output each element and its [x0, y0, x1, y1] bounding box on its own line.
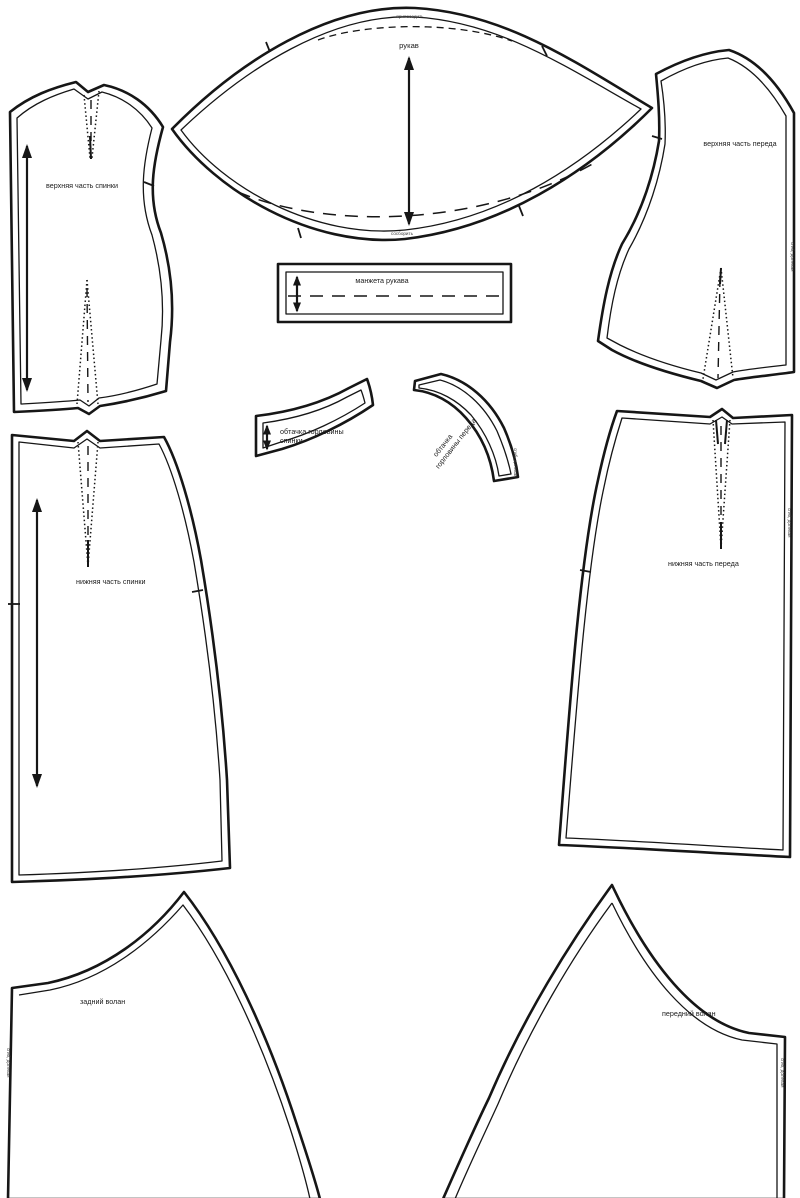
lower-back-label: нижняя часть спинки: [76, 577, 146, 586]
sleeve-label: рукав: [399, 41, 419, 50]
lower-front-label: нижняя часть переда: [668, 559, 739, 568]
upper-front-label: верхняя часть переда: [703, 139, 776, 148]
lower-front-fold-note: сгиб, долевая: [787, 508, 792, 538]
back-neck-facing-label-line2: спинки: [280, 436, 303, 445]
front-flounce-label: передний волан: [662, 1009, 716, 1018]
piece-front-neck-facing: обтачка горловины переда сгиб, долевая: [414, 374, 518, 481]
cuff-cut-line: [278, 264, 511, 322]
upper-back-cut-line: [10, 82, 172, 414]
upper-back-shoulder-dart-point: [90, 136, 91, 159]
front-flounce-fold-note: сгиб, долевая: [780, 1058, 785, 1088]
piece-sleeve: припосадить рукав сосборить: [172, 8, 652, 240]
back-neck-facing-label-line1: обтачка горловины: [280, 427, 344, 436]
sleeve-gather-note: сосборить: [391, 231, 414, 236]
piece-back-neck-facing: обтачка горловины спинки: [256, 379, 373, 456]
front-flounce-cut-line: [443, 885, 785, 1198]
sleeve-ease-note: припосадить: [396, 14, 424, 19]
lower-back-cut-line: [12, 431, 230, 882]
piece-cuff: манжета рукава: [278, 264, 511, 322]
pattern-sheet: верхняя часть спинки припосадить рукав с…: [0, 0, 800, 1198]
upper-front-fold-note: сгиб, долевая: [790, 242, 795, 272]
piece-lower-front: нижняя часть переда сгиб, долевая: [559, 409, 792, 857]
piece-front-flounce: передний волан сгиб, долевая: [443, 885, 785, 1198]
back-flounce-fold-note: сгиб, долевая: [6, 1048, 11, 1078]
upper-front-dart-point: [720, 268, 721, 284]
back-flounce-label: задний волан: [80, 997, 125, 1006]
back-flounce-cut-line: [8, 892, 320, 1198]
front-neck-facing-fold-note: сгиб, долевая: [513, 448, 518, 478]
upper-back-label: верхняя часть спинки: [46, 181, 118, 190]
front-neck-facing-label-group: обтачка горловины переда: [426, 411, 478, 470]
piece-lower-back: нижняя часть спинки: [8, 431, 230, 882]
pattern-sheet-svg: верхняя часть спинки припосадить рукав с…: [0, 0, 800, 1198]
sleeve-notch-bottom-left: [298, 228, 301, 238]
sleeve-notch-bottom-right: [519, 206, 523, 216]
piece-back-flounce: задний волан сгиб, долевая: [6, 892, 320, 1198]
lower-front-cut-line: [559, 409, 792, 857]
cuff-label: манжета рукава: [355, 276, 408, 285]
piece-upper-back: верхняя часть спинки: [10, 82, 172, 414]
